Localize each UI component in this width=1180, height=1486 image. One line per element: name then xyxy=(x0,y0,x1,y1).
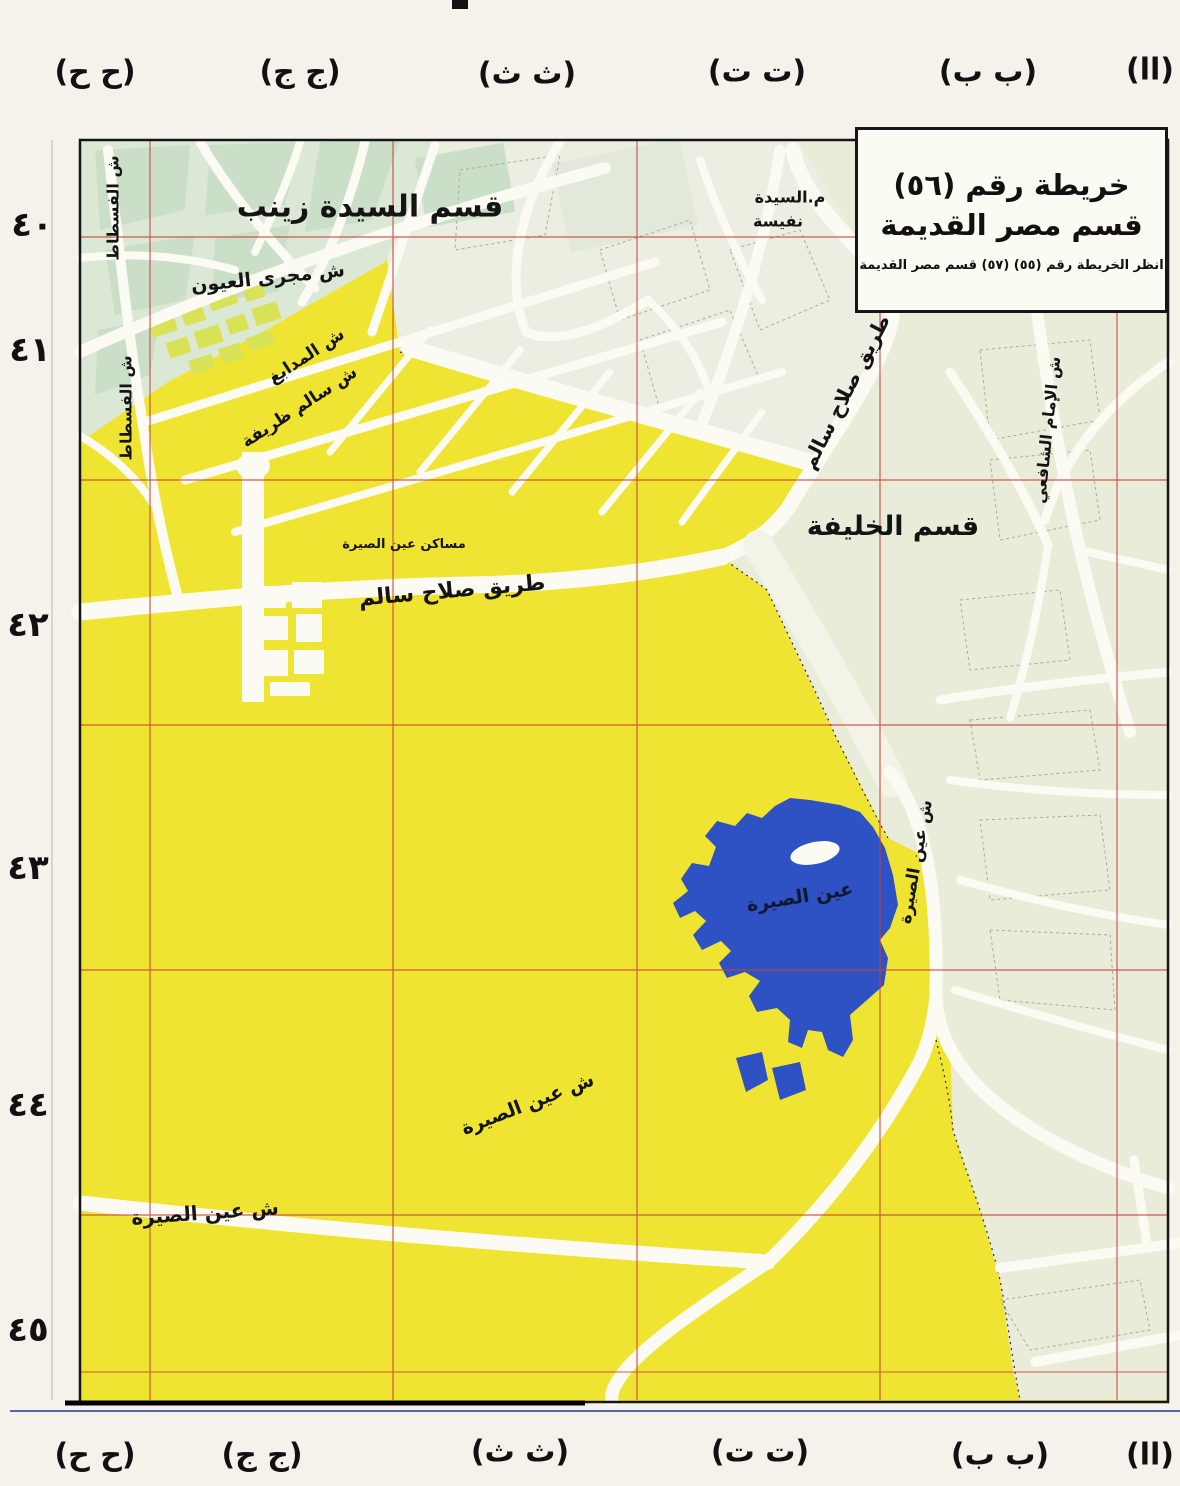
street-label-fustat-2: ش الفسطاط xyxy=(119,355,136,460)
col-label-bottom-jj: (ج ج) xyxy=(221,1438,302,1473)
col-label-top-bb: (ب ب) xyxy=(939,55,1037,90)
col-label-top-thth: (ث ث) xyxy=(478,57,576,92)
row-label-42: ٤٢ xyxy=(7,605,49,645)
col-label-top-jj: (ج ج) xyxy=(259,55,340,90)
area-label-masaken-ain-el-sira: مساكن عين الصيرة xyxy=(342,538,466,552)
district-label-khalifa: قسم الخليفة xyxy=(807,513,979,541)
landmark-label-sayeda-nafisa-1: م.السيدة xyxy=(755,190,826,207)
landmark-label-sayeda-nafisa-2: نفيسة xyxy=(753,214,803,231)
district-title: قسم مصر القديمة xyxy=(880,208,1142,242)
col-label-bottom-bb: (ب ب) xyxy=(951,1438,1049,1473)
street-label-fustat-1: ش الفسطاط xyxy=(106,155,123,260)
district-label-sayeda-zeinab: قسم السيدة زينب xyxy=(237,191,503,223)
row-label-41: ٤١ xyxy=(9,330,51,370)
col-label-bottom-aa: (اا) xyxy=(1126,1438,1174,1473)
col-label-bottom-hh: (ح ح) xyxy=(54,1438,135,1473)
col-label-bottom-thth: (ث ث) xyxy=(471,1435,569,1470)
map-page: خريطة رقم (٥٦) قسم مصر القديمة انظر الخر… xyxy=(0,0,1180,1486)
col-label-top-hh: (ح ح) xyxy=(54,55,135,90)
row-label-40: ٤٠ xyxy=(11,205,53,245)
map-number-title: خريطة رقم (٥٦) xyxy=(893,168,1129,202)
col-label-top-aa: (اا) xyxy=(1126,53,1174,88)
col-label-top-tt: (ت ت) xyxy=(708,55,806,90)
see-also-note: انظر الخريطة رقم (٥٥) (٥٧) قسم مصر القدي… xyxy=(859,258,1163,273)
scan-mark xyxy=(452,0,468,9)
row-label-43: ٤٣ xyxy=(7,848,49,888)
title-box: خريطة رقم (٥٦) قسم مصر القديمة انظر الخر… xyxy=(855,127,1168,313)
row-label-44: ٤٤ xyxy=(7,1085,49,1125)
row-label-45: ٤٥ xyxy=(7,1310,49,1350)
col-label-bottom-tt: (ت ت) xyxy=(711,1435,809,1470)
